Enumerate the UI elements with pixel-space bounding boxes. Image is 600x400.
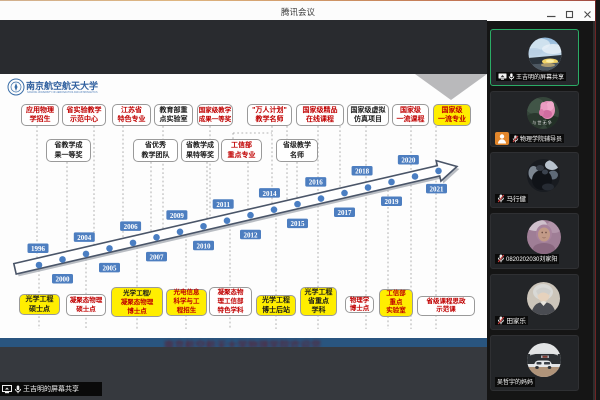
svg-text:2016: 2016: [309, 179, 324, 187]
svg-text:2010: 2010: [197, 242, 212, 250]
svg-text:1996: 1996: [31, 245, 46, 253]
svg-text:2021: 2021: [430, 186, 445, 194]
svg-text:2020: 2020: [401, 157, 416, 165]
svg-text:2012: 2012: [244, 231, 259, 239]
svg-text:2006: 2006: [124, 223, 139, 231]
svg-text:2000: 2000: [56, 276, 71, 284]
svg-text:2005: 2005: [103, 264, 118, 272]
svg-text:2014: 2014: [262, 190, 277, 198]
svg-text:2009: 2009: [170, 212, 185, 220]
svg-text:与世无争: 与世无争: [532, 119, 553, 126]
svg-text:2018: 2018: [355, 168, 370, 176]
svg-text:2004: 2004: [77, 234, 92, 242]
svg-text:2015: 2015: [291, 220, 306, 228]
svg-text:2019: 2019: [385, 198, 400, 206]
svg-text:2011: 2011: [216, 201, 230, 209]
svg-text:2007: 2007: [150, 253, 165, 261]
svg-text:2017: 2017: [338, 209, 353, 217]
